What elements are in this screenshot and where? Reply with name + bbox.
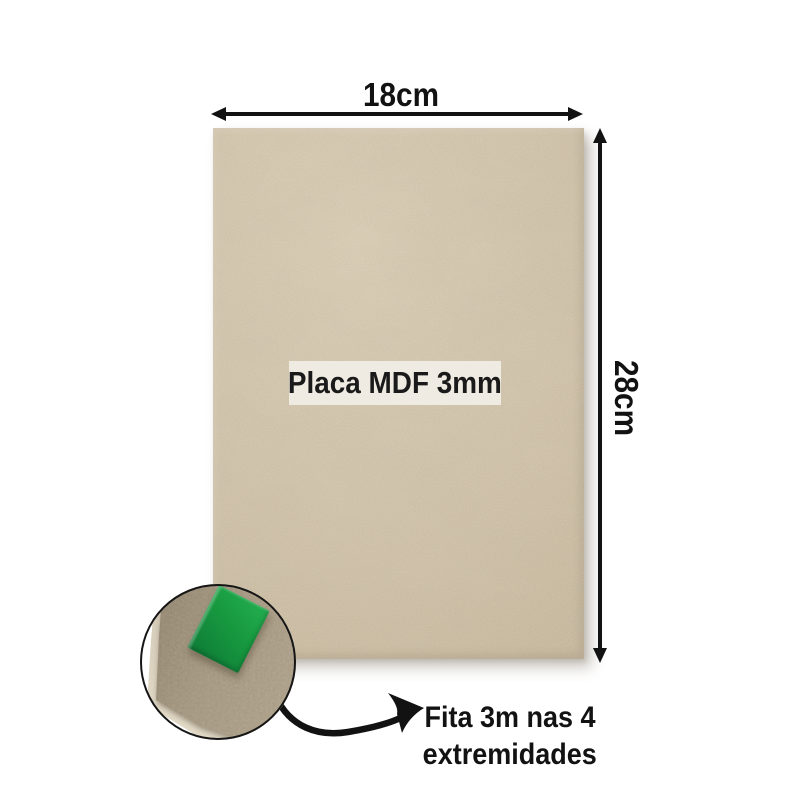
tape-note-line-1: Fita 3m nas 4 bbox=[424, 699, 595, 736]
tape-note-line-2: extremidades bbox=[423, 736, 597, 773]
callout-curved-arrow-icon bbox=[276, 693, 424, 733]
annotation-arrows bbox=[0, 0, 800, 800]
product-dimension-diagram: 18cm 28cm bbox=[0, 0, 800, 800]
tape-note: Fita 3m nas 4 extremidades bbox=[404, 699, 616, 773]
zoom-circle-ring bbox=[140, 584, 296, 740]
width-dimension-arrow-icon bbox=[211, 107, 583, 121]
height-dimension-arrow-icon bbox=[593, 128, 607, 663]
